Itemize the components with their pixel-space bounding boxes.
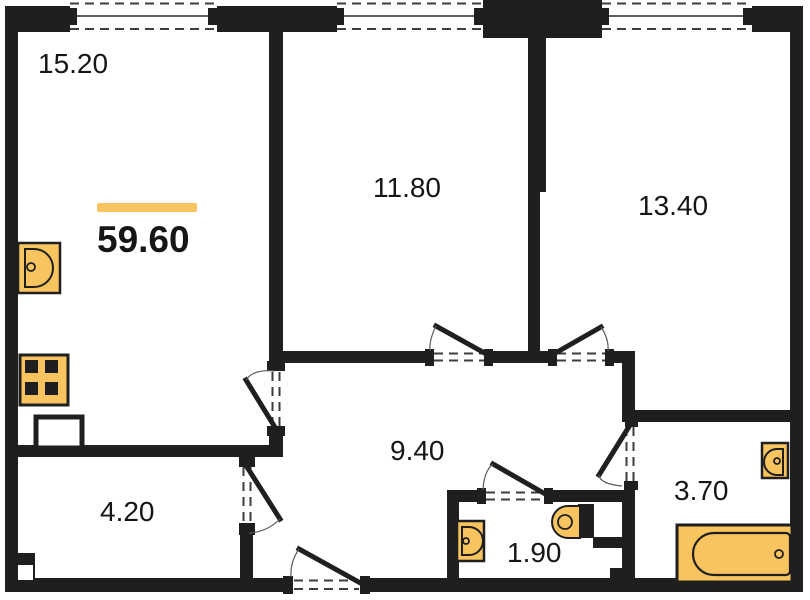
bath-sink-icon [762,443,788,478]
stove-icon [20,355,68,405]
door-living-hall [246,371,280,429]
room-area-bathroom: 3.70 [674,475,729,506]
accent-bar [97,203,197,212]
bathtub-icon [677,525,792,582]
room-area-wc: 1.90 [507,537,562,568]
window-bedroom-2 [600,4,752,30]
wc-sink-icon [457,521,484,561]
door-entrance [291,549,364,589]
room-area-bedroom-2: 13.40 [638,190,708,221]
room-area-storage: 4.20 [100,496,155,527]
room-area-hallway: 9.40 [390,435,445,466]
floor-plan: 59.60 15.20 11.80 13.40 9.40 4.20 1.90 3… [0,0,810,600]
room-area-living-kitchen: 15.20 [38,48,108,79]
room-area-bedroom-1: 11.80 [373,172,441,203]
door-wc [483,464,547,500]
kitchen-sink-icon [18,243,60,293]
door-bedroom-1 [430,326,488,361]
door-bathroom [599,425,634,486]
window-bedroom-1 [335,4,483,30]
total-area-label: 59.60 [97,219,190,260]
floor-plan-canvas: 59.60 15.20 11.80 13.40 9.40 4.20 1.90 3… [0,0,810,600]
window-living [68,4,217,30]
washing-machine-icon [36,417,82,448]
door-bedroom-2 [552,327,608,361]
toilet-icon [552,504,594,538]
